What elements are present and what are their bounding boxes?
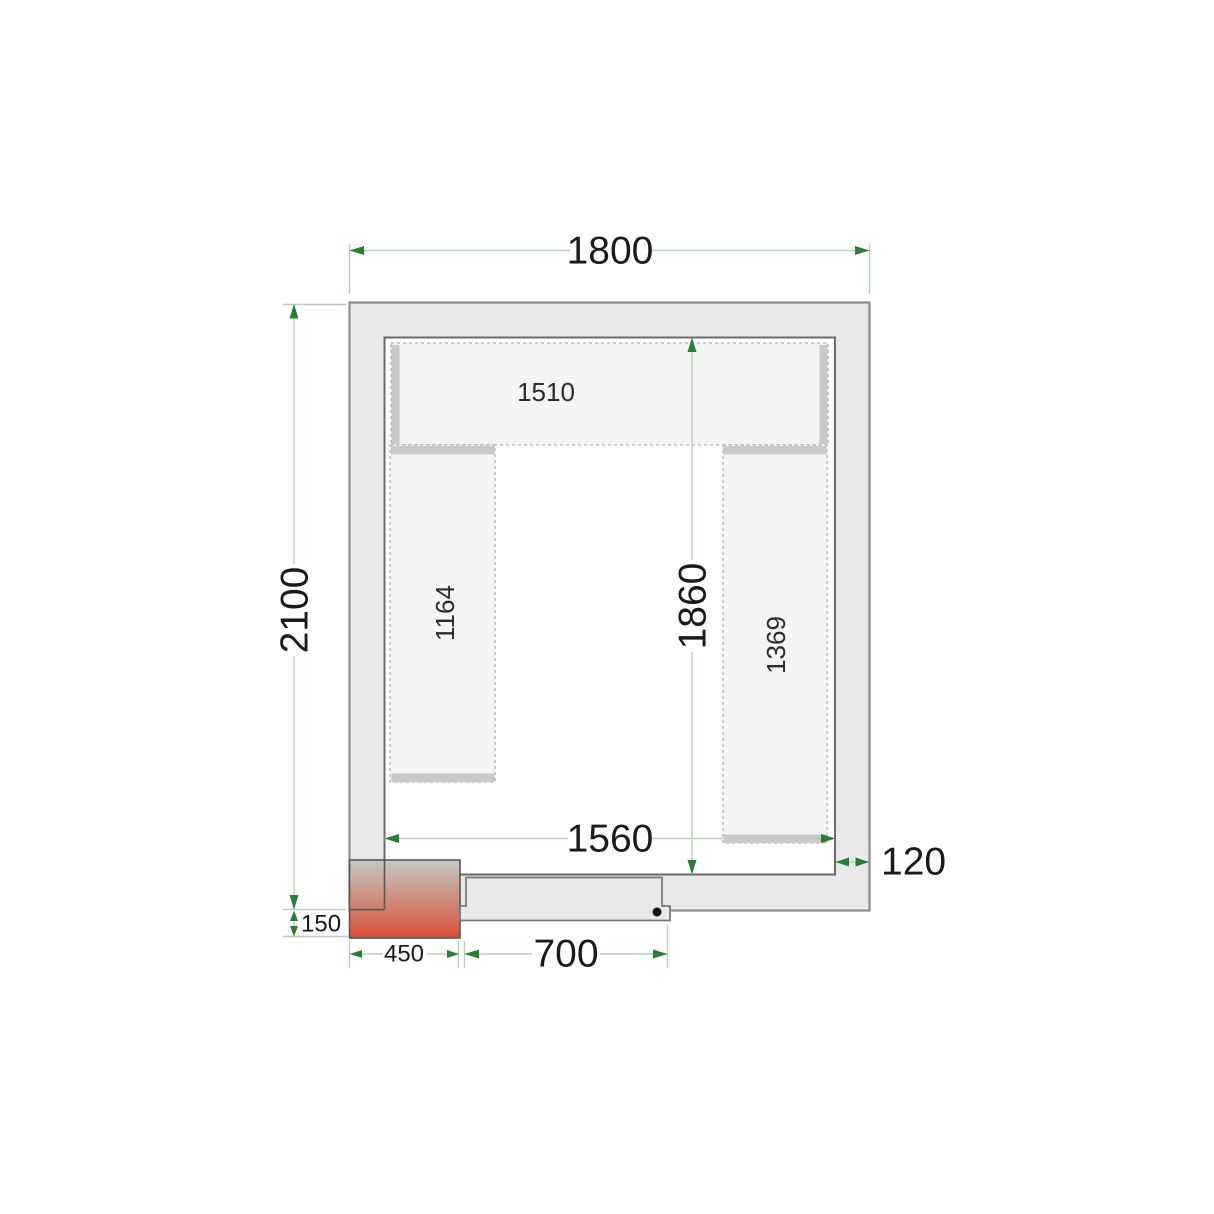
dim-unit-width: 450 (350, 940, 460, 968)
dim-outer-width: 1800 (350, 230, 870, 294)
dim-outer-depth: 2100 (274, 304, 346, 910)
cold-room-floor-plan: 1510 1164 1369 1800 2100 1860 1560 (0, 0, 1214, 1214)
dim-unit-offset-label: 150 (301, 910, 341, 937)
shelf-top-label: 1510 (517, 377, 575, 407)
bracket-top-shelf-right (820, 345, 828, 444)
dim-arrow-down-icon (290, 926, 298, 937)
dim-outer-width-label: 1800 (567, 230, 654, 273)
cooling-unit (350, 860, 461, 938)
door-leaf (460, 878, 670, 921)
dim-unit-offset: 150 (283, 910, 349, 937)
dim-outer-depth-label: 2100 (274, 567, 317, 654)
dim-door-width-label: 700 (533, 933, 598, 976)
dim-door-width: 700 (465, 925, 668, 976)
dim-arrow-right-icon (855, 246, 870, 255)
shelf-left-label: 1164 (430, 585, 460, 641)
dim-arrow-up-icon (290, 911, 298, 922)
dim-inner-depth-label: 1860 (672, 563, 715, 650)
dim-arrow-right-icon (653, 950, 668, 959)
floor-plan-drawing: 1510 1164 1369 1800 2100 1860 1560 (0, 0, 1214, 1214)
dim-arrow-down-icon (290, 895, 299, 910)
dim-arrow-right-icon (447, 950, 459, 958)
shelf-top (391, 343, 828, 445)
dim-arrow-up-icon (290, 304, 299, 319)
dim-arrow-left-icon (350, 246, 365, 255)
dim-wall-thickness-label: 120 (881, 841, 946, 884)
dim-unit-width-label: 450 (384, 940, 424, 967)
bracket-top-shelf-left (392, 345, 400, 444)
shelf-right-label: 1369 (761, 616, 791, 674)
dim-arrow-left-icon (350, 950, 362, 958)
bracket-left-shelf-top (391, 446, 495, 455)
door-handle-icon (653, 908, 662, 917)
dim-arrow-left-icon (465, 950, 480, 959)
bracket-left-shelf-bottom (392, 774, 495, 783)
bracket-right-shelf-top (723, 446, 827, 455)
dim-inner-width-label: 1560 (567, 818, 654, 861)
